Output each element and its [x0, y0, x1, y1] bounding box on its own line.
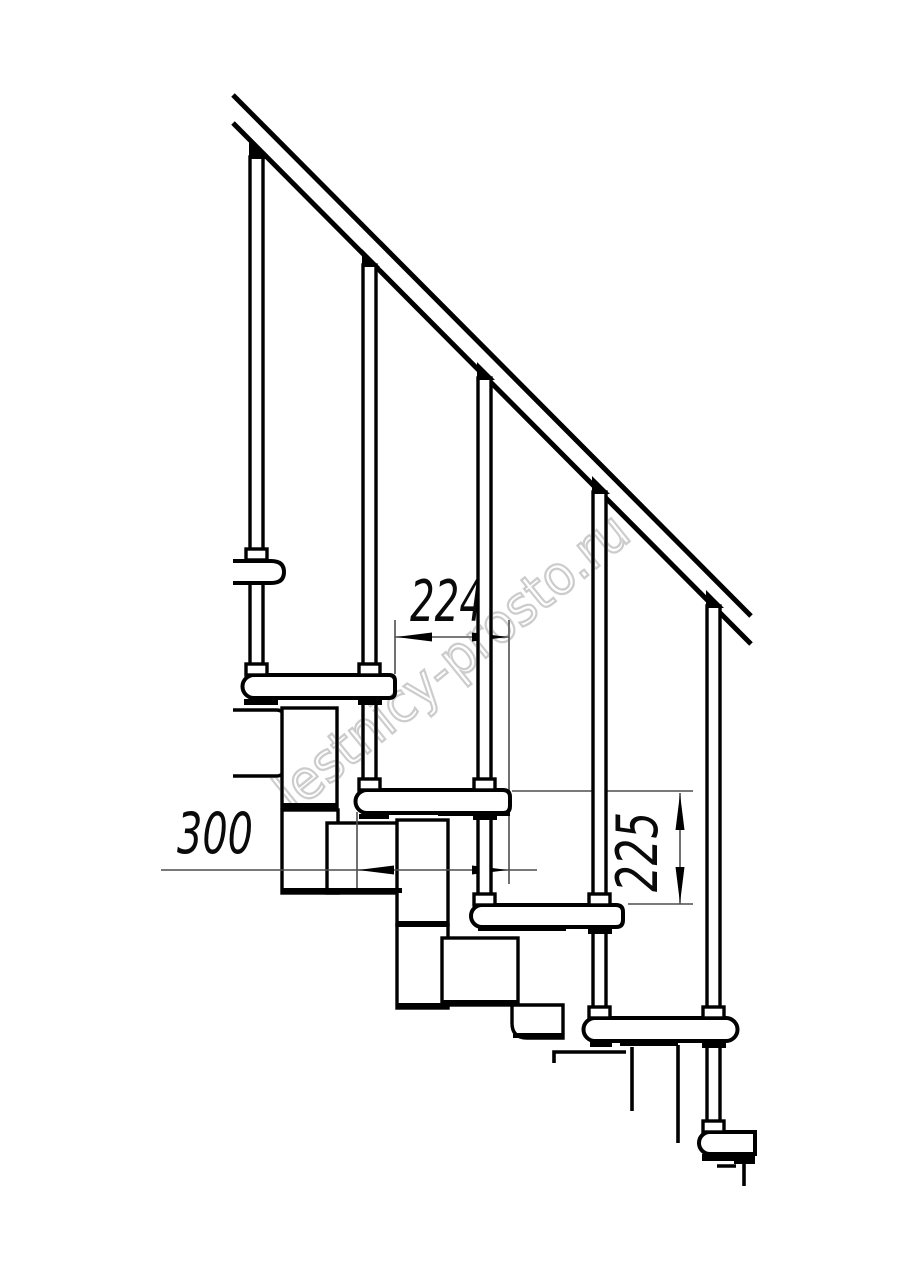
collar [703, 1121, 724, 1132]
module-heavy-edge [513, 1033, 562, 1038]
collar [589, 894, 610, 905]
tread-clamp [702, 1154, 735, 1161]
collar [589, 1007, 610, 1018]
module-heavy-edge [398, 921, 447, 927]
collar [246, 549, 267, 560]
rail-wedge-icon [706, 590, 724, 608]
baluster-2 [362, 249, 380, 790]
stringer-module-6 [442, 938, 518, 1005]
baluster-1 [249, 141, 267, 675]
tread-clamp [358, 699, 382, 705]
collar [359, 664, 380, 675]
dimension-225-label: 225 [605, 812, 671, 892]
baluster-rod [363, 265, 376, 790]
module-heavy-edge [398, 1003, 447, 1008]
tread-1 [243, 675, 396, 698]
rail-wedge-icon [592, 476, 610, 494]
tread-clamp [478, 926, 566, 931]
stringer-module-4 [397, 820, 448, 925]
rail-wedge-icon [249, 141, 267, 159]
module-heavy-edge [443, 1000, 517, 1005]
tread-clamp [588, 928, 612, 934]
stringer-module-upper-flight [233, 710, 284, 776]
baluster-rod [250, 157, 263, 675]
collar [474, 779, 495, 790]
tread-clamp [359, 814, 389, 819]
collar [474, 894, 495, 905]
tread-5 [699, 1132, 755, 1154]
tread-clamp [734, 1155, 755, 1164]
collar [246, 664, 267, 675]
tread-clamp [702, 1042, 726, 1048]
staircase-drawing-page: 224 300 225 [0, 0, 914, 1280]
tread-2 [356, 790, 511, 813]
tread-clamp [590, 1042, 612, 1047]
baluster-4 [592, 476, 610, 1018]
baluster-rod [478, 378, 491, 905]
tread-3 [471, 905, 623, 927]
arrow-up-icon [676, 794, 685, 830]
baluster-3 [477, 362, 495, 905]
cutoff-line [554, 1052, 626, 1063]
module-heavy-edge [283, 803, 336, 808]
module-heavy-edge [328, 888, 402, 893]
arrow-down-icon [676, 867, 685, 903]
dimension-224-label: 224 [410, 569, 484, 635]
baluster-5 [706, 590, 724, 1132]
tread-4 [584, 1018, 738, 1041]
baluster-rod [593, 492, 606, 1018]
baluster-rod [707, 606, 720, 1132]
collar [703, 1007, 724, 1018]
tread-upper-flight [233, 561, 284, 583]
staircase-technical-drawing: 224 300 225 [0, 0, 914, 1280]
tread-clamp [244, 699, 278, 705]
tread-clamp [473, 814, 497, 820]
dimension-300-label: 300 [177, 801, 253, 867]
stringer-module-1 [282, 708, 337, 807]
tread-clamp [620, 1041, 678, 1046]
stringer-module-3 [327, 823, 403, 893]
rail-wedge-icon [362, 249, 380, 267]
collar [359, 779, 380, 790]
rail-wedge-icon [477, 362, 495, 380]
